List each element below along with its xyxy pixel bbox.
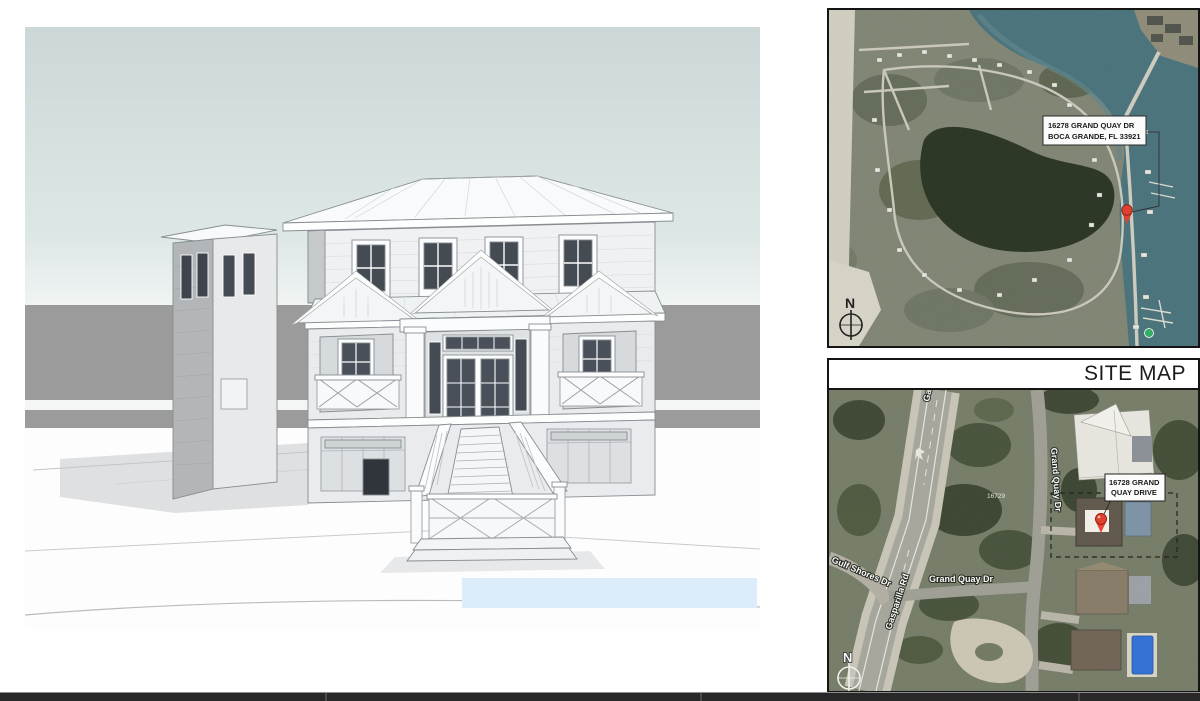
house-rendering — [25, 27, 760, 630]
architectural-rendering-panel — [25, 27, 760, 630]
garage-door-right — [547, 429, 631, 483]
exhibit-page: { "colors": { "page_bg": "#ffffff", "bot… — [0, 0, 1200, 700]
site-map-title: SITE MAP — [1084, 362, 1186, 386]
satellite-noise-overlay — [829, 390, 1198, 691]
left-porch — [315, 334, 401, 412]
right-porch — [558, 331, 644, 409]
third-floor-corner-shade — [308, 230, 325, 303]
crawlspace-vent — [363, 459, 389, 495]
location-map-panel: 16278 GRAND QUAY DR BOCA GRANDE, FL 3392… — [827, 8, 1200, 348]
pool-strip — [462, 578, 757, 608]
site-map: 16728 GRAND QUAY DRIVE Gaspar Gasparilla… — [829, 390, 1198, 691]
site-map-panel: SITE MAP — [827, 358, 1200, 693]
tower-utility-box — [221, 379, 247, 409]
tower-window-4 — [243, 253, 255, 295]
location-map: 16278 GRAND QUAY DR BOCA GRANDE, FL 3392… — [829, 10, 1198, 346]
satellite-noise-overlay — [829, 10, 1198, 346]
tower-window-1 — [181, 255, 192, 299]
tower-window-3 — [223, 255, 235, 297]
tower-window-2 — [197, 253, 208, 297]
site-map-header: SITE MAP — [829, 360, 1198, 390]
